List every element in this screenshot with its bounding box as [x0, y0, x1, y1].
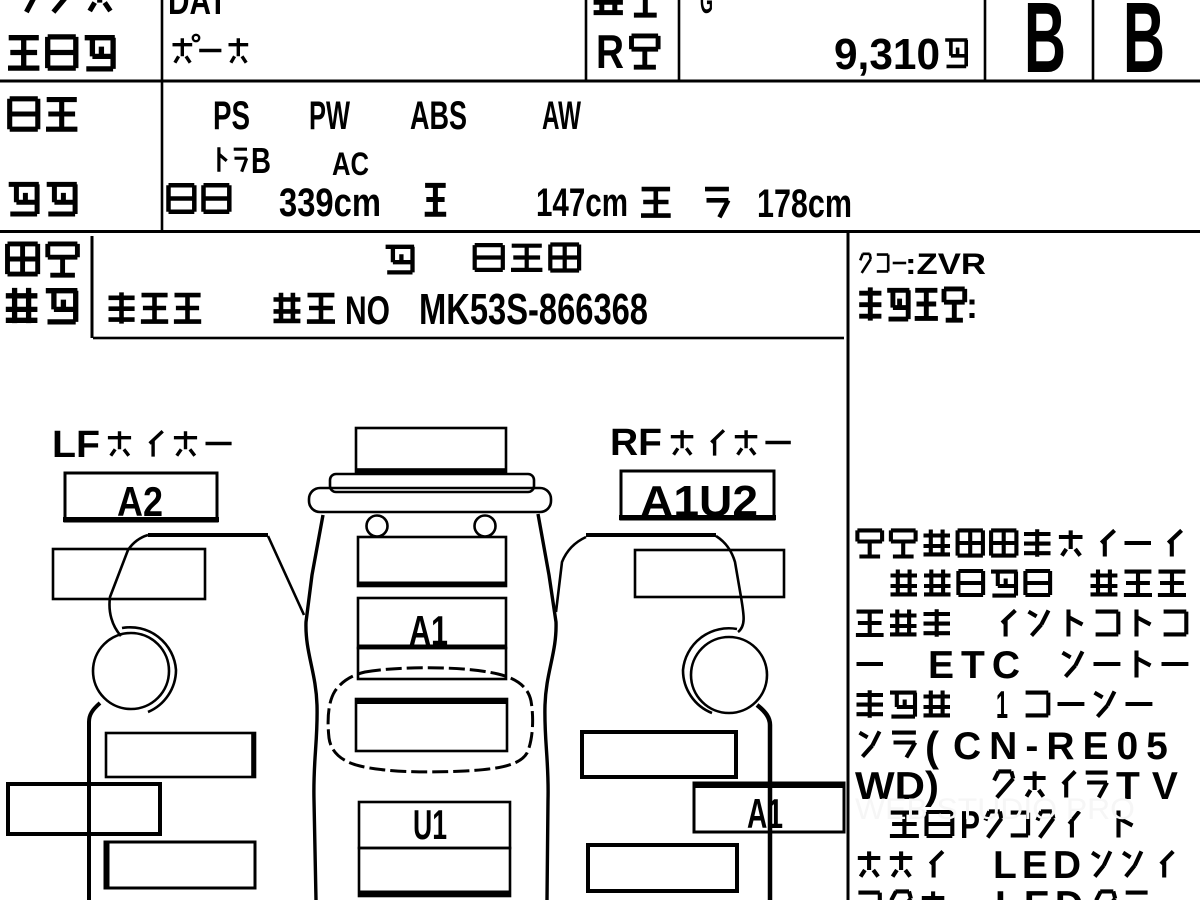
svg-text:WEB STUDIO PRO: WEB STUDIO PRO [855, 793, 1135, 826]
svg-text:CN-RE05: CN-RE05 [953, 725, 1176, 768]
svg-text:MK53S-866368: MK53S-866368 [419, 285, 648, 334]
svg-text:G: G [700, 0, 713, 21]
svg-text:ABS: ABS [410, 94, 467, 138]
svg-text:AW: AW [542, 94, 581, 138]
svg-text:339cm: 339cm [279, 181, 381, 225]
svg-text:ETC: ETC [928, 644, 1027, 687]
svg-text:A1: A1 [747, 790, 783, 837]
svg-text:R: R [596, 25, 624, 78]
svg-text::: : [966, 285, 978, 326]
svg-text:9,310: 9,310 [834, 30, 940, 79]
svg-text:LF: LF [52, 424, 100, 466]
svg-text:RF: RF [610, 422, 662, 464]
svg-text:PW: PW [309, 94, 350, 138]
svg-text:DAT: DAT [168, 0, 227, 23]
svg-text:A1U2: A1U2 [640, 477, 758, 526]
svg-text:LED: LED [995, 884, 1088, 900]
svg-text:AC: AC [332, 146, 369, 182]
svg-text:(: ( [925, 723, 939, 770]
svg-text:1: 1 [996, 684, 1008, 727]
svg-text:NO: NO [345, 289, 390, 333]
svg-text:U1: U1 [413, 801, 447, 848]
svg-text:B: B [1024, 0, 1066, 94]
svg-text:PS: PS [213, 94, 250, 138]
svg-text:LED: LED [993, 844, 1086, 887]
svg-text:A2: A2 [117, 478, 163, 525]
svg-text:B: B [251, 140, 271, 181]
svg-text:B: B [1123, 0, 1165, 94]
svg-text:178cm: 178cm [757, 182, 852, 226]
svg-text::ZVR: :ZVR [905, 248, 986, 281]
svg-text:147cm: 147cm [536, 181, 628, 225]
